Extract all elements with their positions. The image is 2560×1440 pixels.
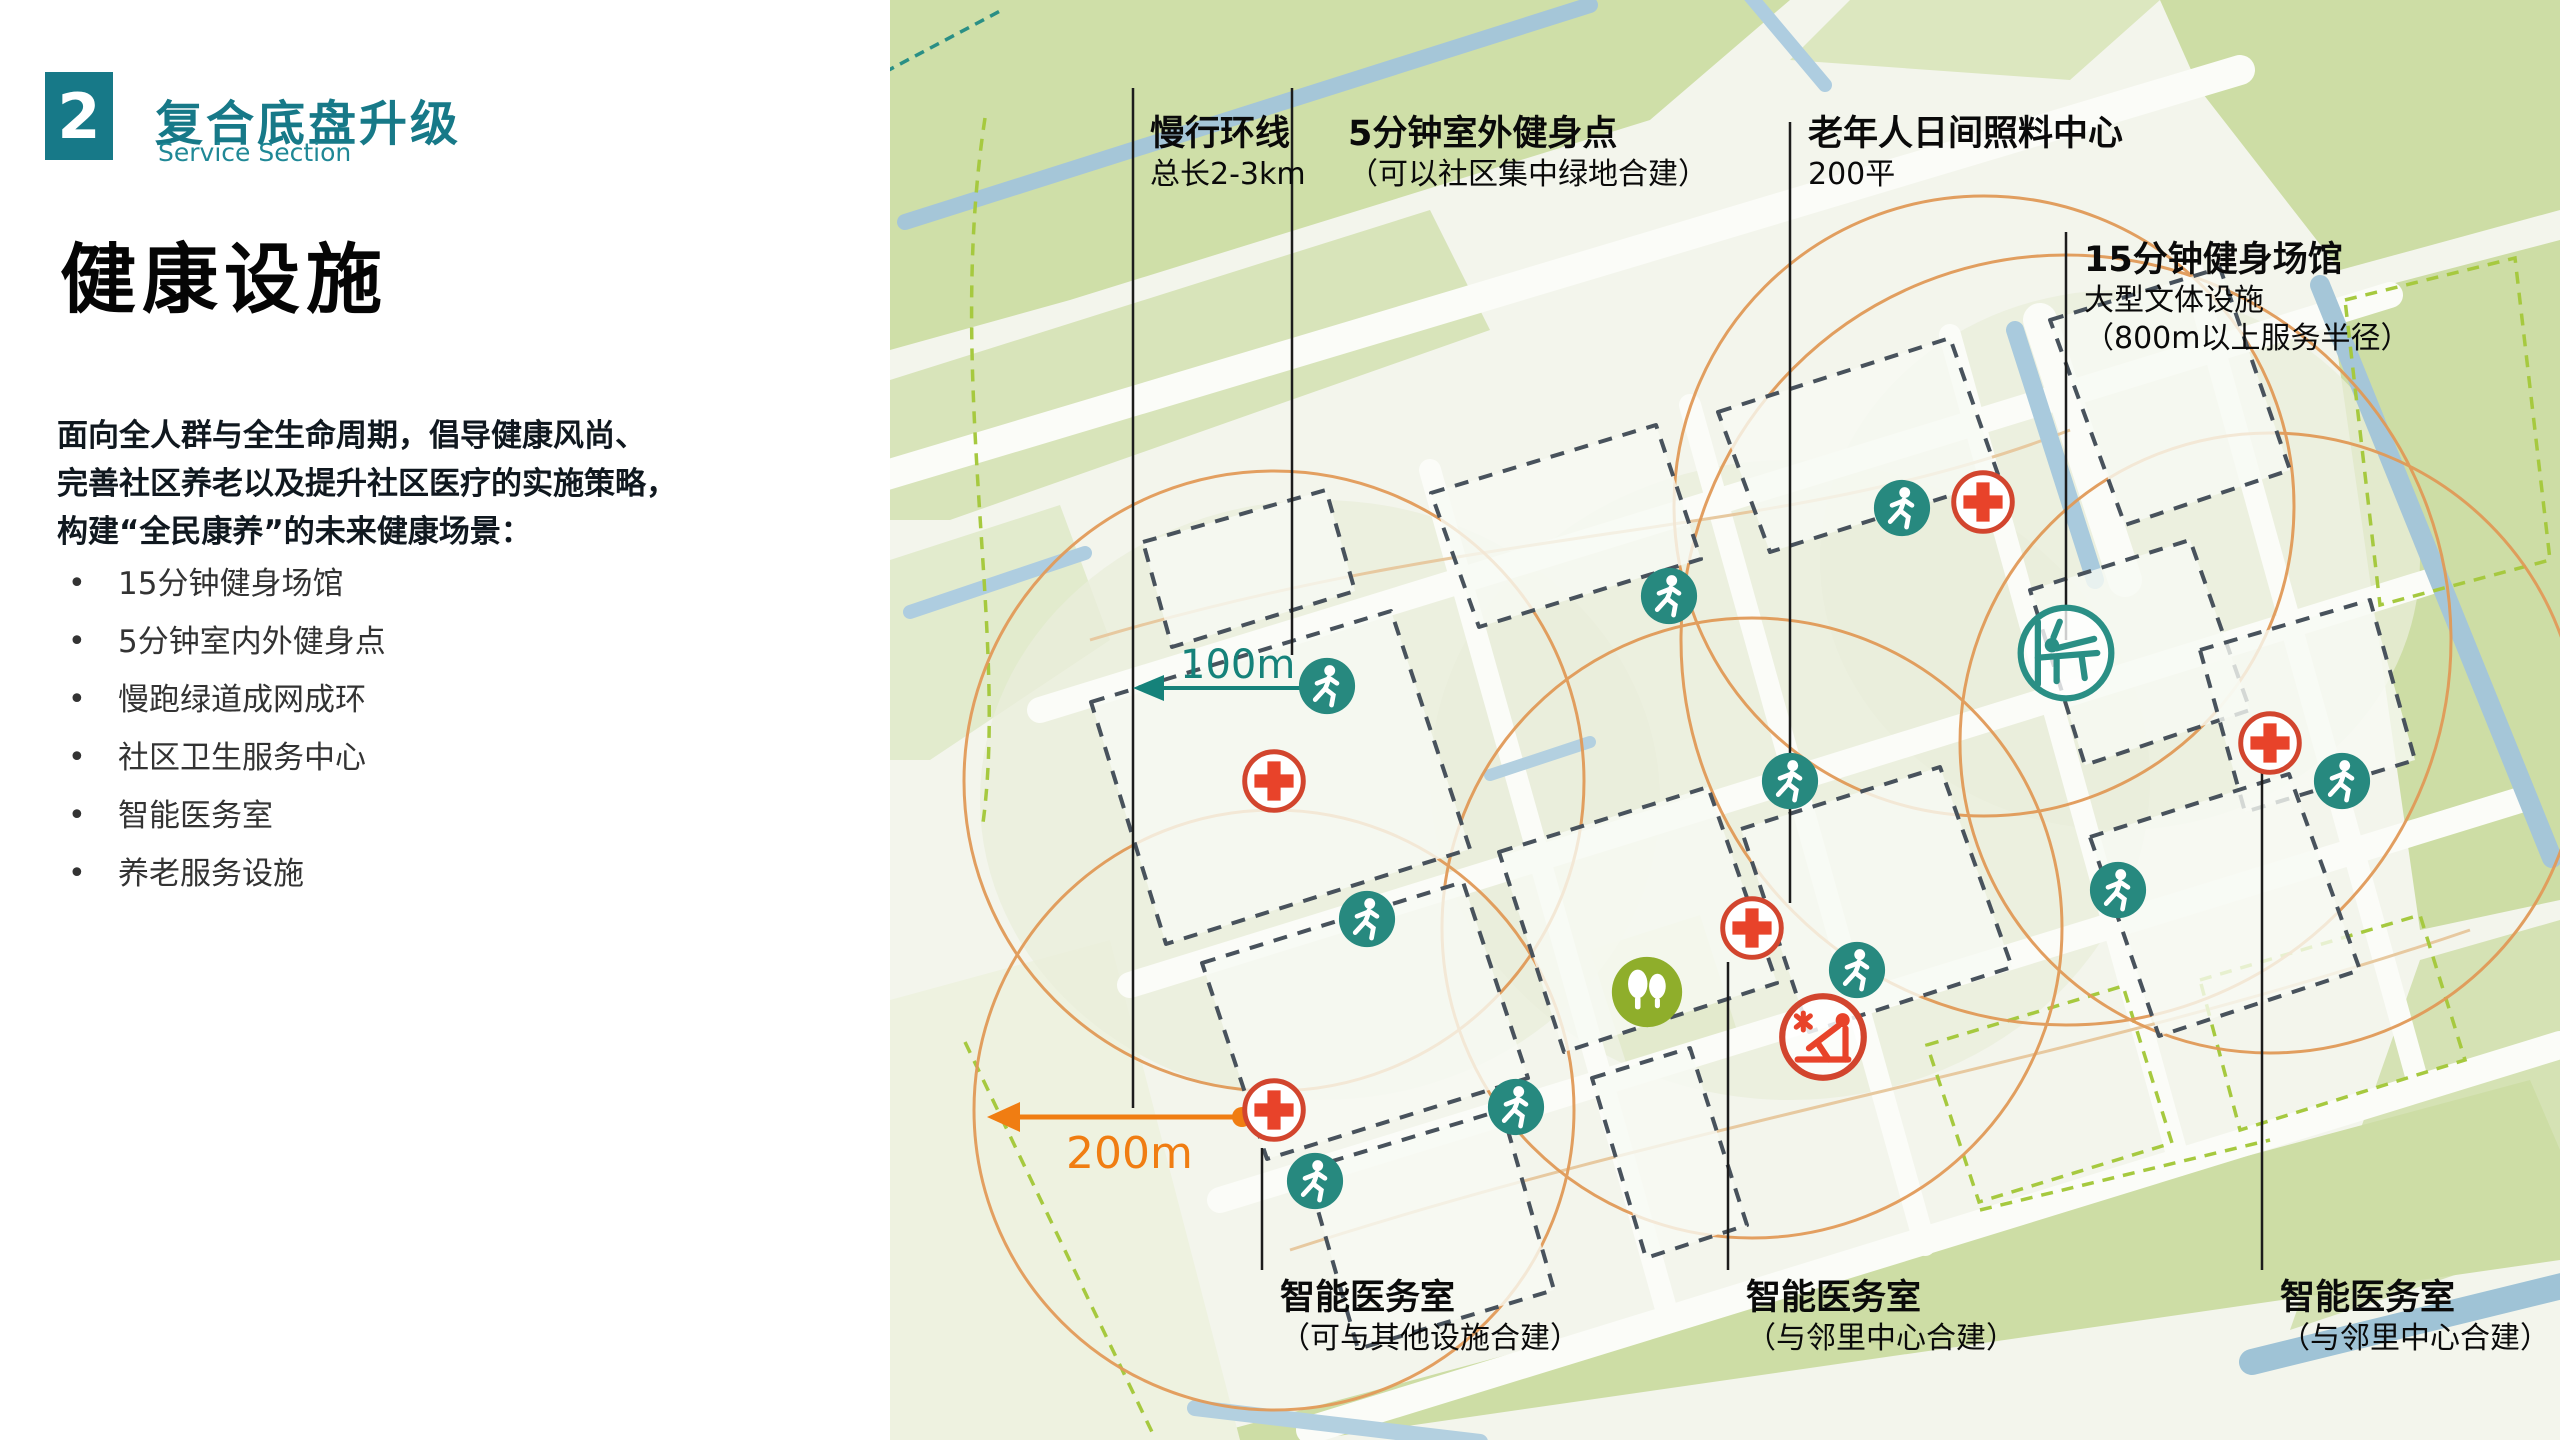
section-number-badge: 2 bbox=[45, 72, 113, 160]
list-item: 社区卫生服务中心 bbox=[60, 736, 386, 794]
list-item: 慢跑绿道成网成环 bbox=[60, 678, 386, 736]
list-item: 智能医务室 bbox=[60, 794, 386, 852]
list-item: 15分钟健身场馆 bbox=[60, 562, 386, 620]
intro-paragraph: 面向全人群与全生命周期，倡导健康风尚、 完善社区养老以及提升社区医疗的实施策略，… bbox=[57, 412, 877, 556]
intro-line: 完善社区养老以及提升社区医疗的实施策略， bbox=[57, 460, 877, 508]
intro-line: 面向全人群与全生命周期，倡导健康风尚、 bbox=[57, 412, 877, 460]
page-title: 健康设施 bbox=[60, 218, 388, 328]
section-number: 2 bbox=[57, 80, 100, 153]
master-plan-map bbox=[890, 0, 2560, 1440]
list-item: 5分钟室内外健身点 bbox=[60, 620, 386, 678]
intro-line: 构建“全民康养”的未来健康场景： bbox=[57, 508, 877, 556]
section-subtitle: Service Section bbox=[158, 138, 351, 167]
list-item: 养老服务设施 bbox=[60, 852, 386, 910]
feature-bullet-list: 15分钟健身场馆 5分钟室内外健身点 慢跑绿道成网成环 社区卫生服务中心 智能医… bbox=[60, 562, 386, 910]
